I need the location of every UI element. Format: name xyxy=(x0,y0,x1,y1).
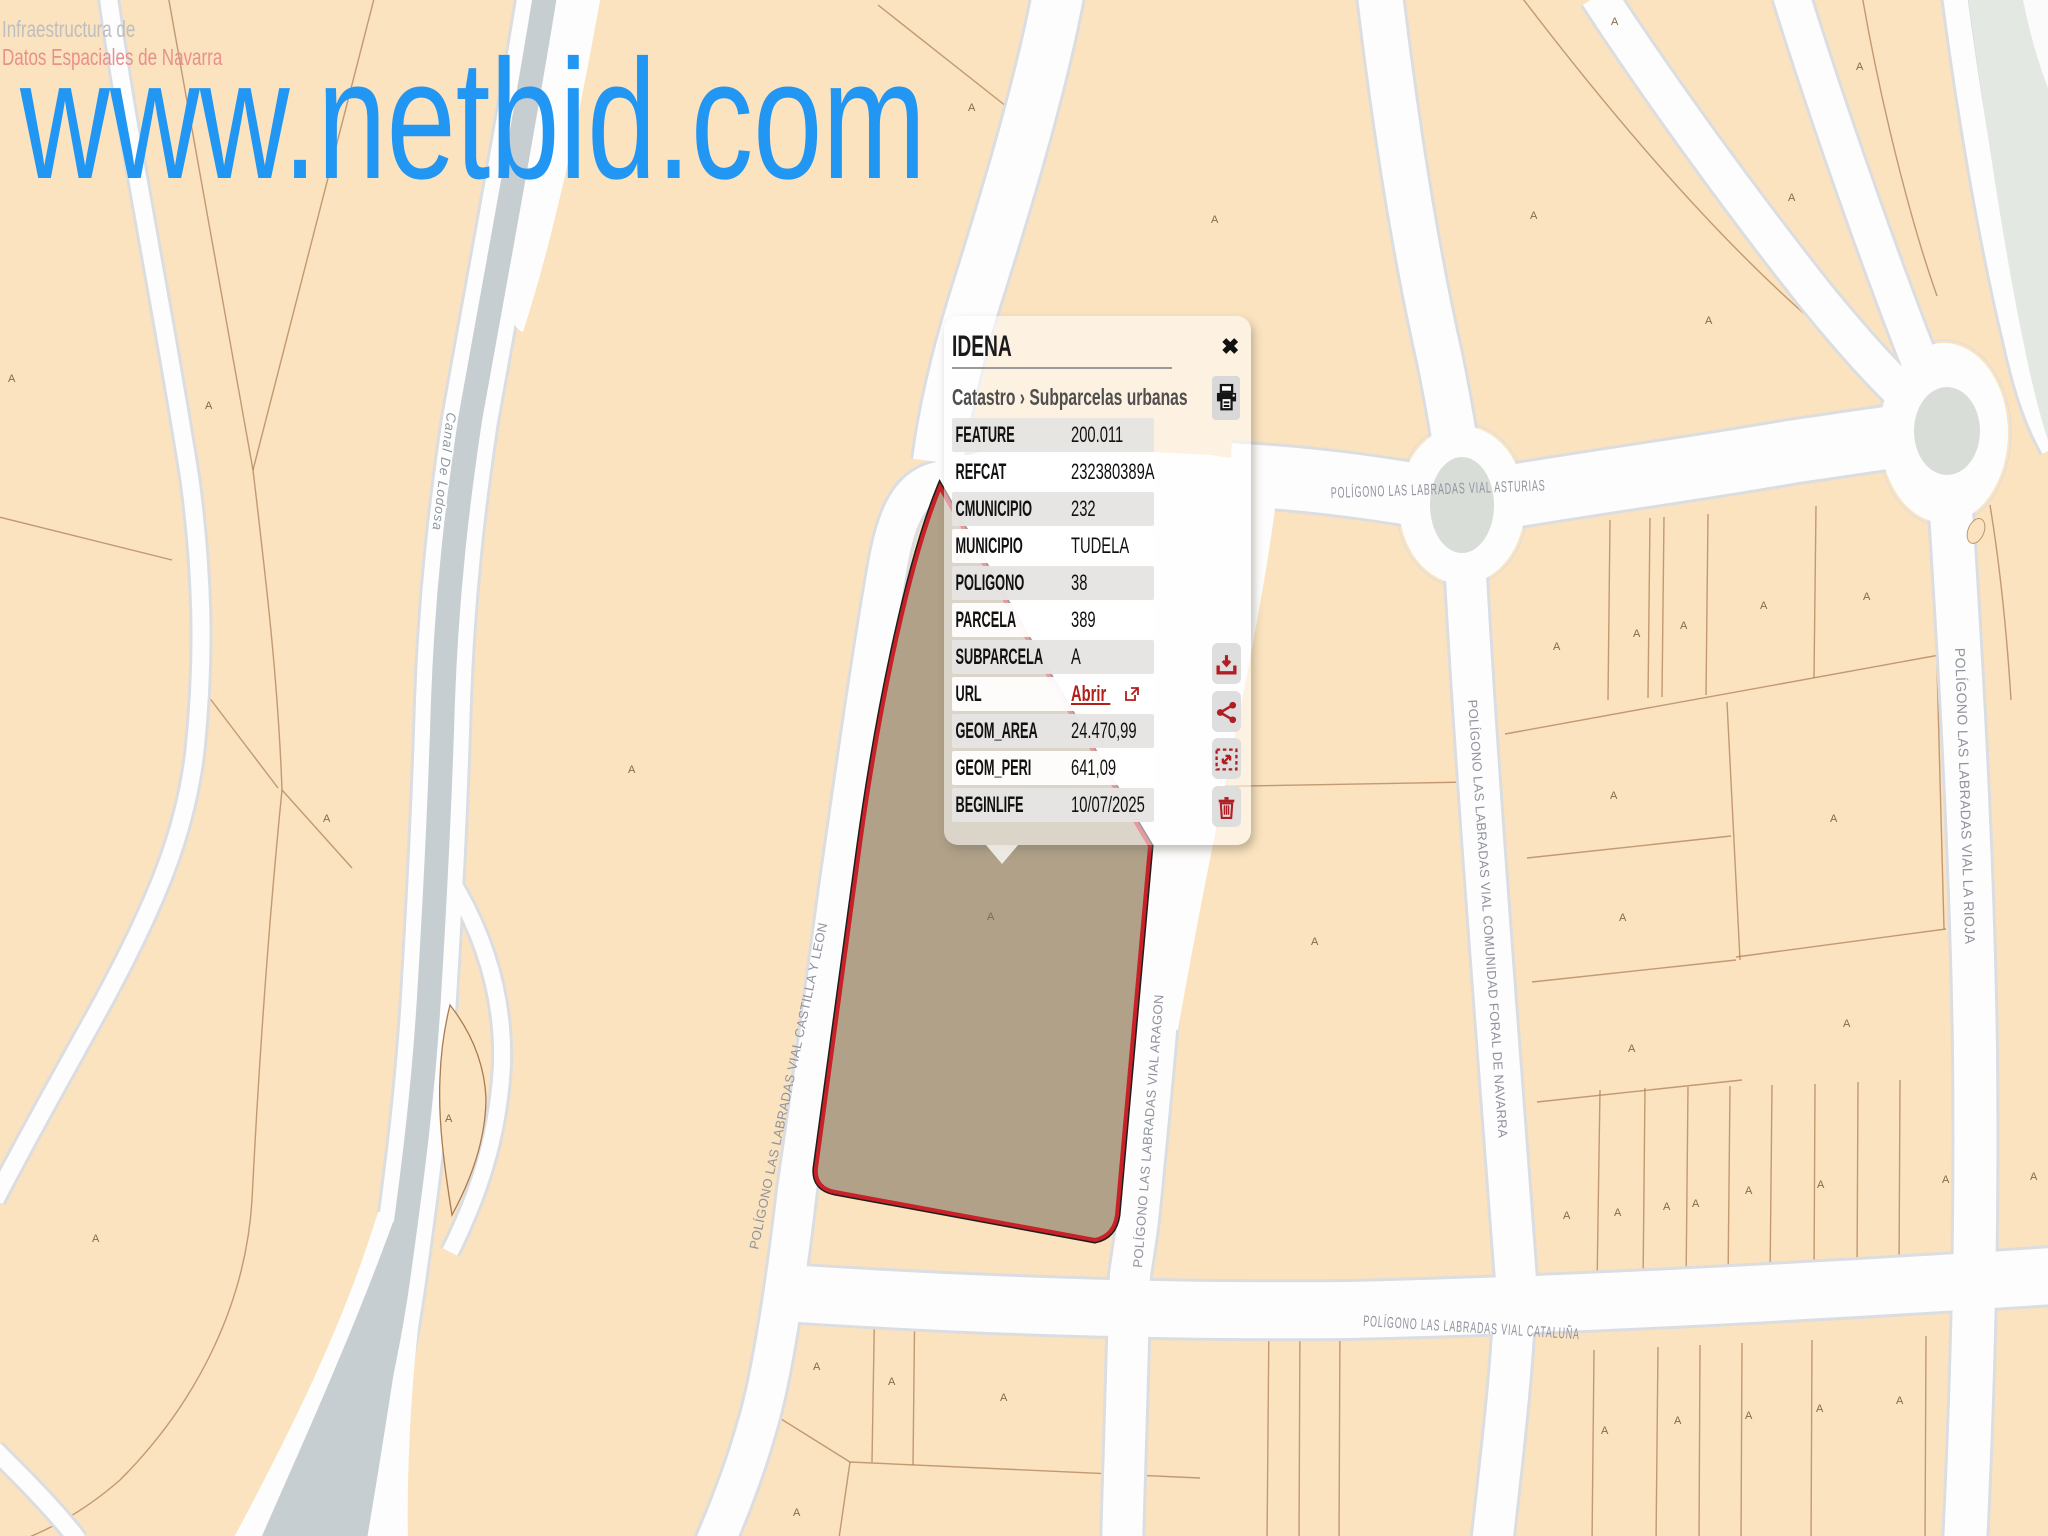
svg-text:A: A xyxy=(1745,1410,1753,1422)
svg-text:A: A xyxy=(1843,1018,1851,1030)
svg-text:A: A xyxy=(1610,790,1618,802)
svg-text:A: A xyxy=(1628,1043,1636,1055)
svg-text:A: A xyxy=(1611,16,1619,28)
svg-text:A: A xyxy=(445,1113,453,1125)
svg-text:A: A xyxy=(1311,936,1319,948)
svg-text:A: A xyxy=(1817,1179,1825,1191)
svg-text:A: A xyxy=(888,1376,896,1388)
svg-text:www.netbid.com: www.netbid.com xyxy=(19,24,926,215)
svg-text:A: A xyxy=(1705,315,1713,327)
svg-text:A: A xyxy=(1896,1395,1904,1407)
svg-text:A: A xyxy=(1211,214,1219,226)
svg-text:A: A xyxy=(1663,1201,1671,1213)
svg-text:A: A xyxy=(813,1361,821,1373)
svg-text:A: A xyxy=(1563,1210,1571,1222)
svg-text:A: A xyxy=(793,1507,801,1519)
svg-text:A: A xyxy=(1633,628,1641,640)
svg-text:A: A xyxy=(8,373,16,385)
svg-text:A: A xyxy=(92,1233,100,1245)
svg-text:A: A xyxy=(1614,1207,1622,1219)
svg-text:A: A xyxy=(1760,600,1768,612)
svg-text:A: A xyxy=(323,813,331,825)
svg-text:A: A xyxy=(1692,1198,1700,1210)
svg-text:A: A xyxy=(628,764,636,776)
svg-text:A: A xyxy=(1553,641,1561,653)
svg-text:A: A xyxy=(1830,813,1838,825)
svg-text:A: A xyxy=(1942,1174,1950,1186)
svg-text:A: A xyxy=(1000,1392,1008,1404)
svg-text:A: A xyxy=(1619,912,1627,924)
svg-text:A: A xyxy=(2030,1171,2038,1183)
svg-text:A: A xyxy=(1674,1415,1682,1427)
svg-text:A: A xyxy=(968,102,976,114)
svg-text:A: A xyxy=(1745,1185,1753,1197)
svg-text:A: A xyxy=(1863,591,1871,603)
svg-text:A: A xyxy=(205,400,213,412)
svg-text:A: A xyxy=(987,911,995,923)
svg-text:A: A xyxy=(1680,620,1688,632)
svg-text:A: A xyxy=(1788,192,1796,204)
svg-text:A: A xyxy=(1856,61,1864,73)
svg-text:A: A xyxy=(1601,1425,1609,1437)
svg-text:A: A xyxy=(1530,210,1538,222)
svg-text:A: A xyxy=(1816,1403,1824,1415)
